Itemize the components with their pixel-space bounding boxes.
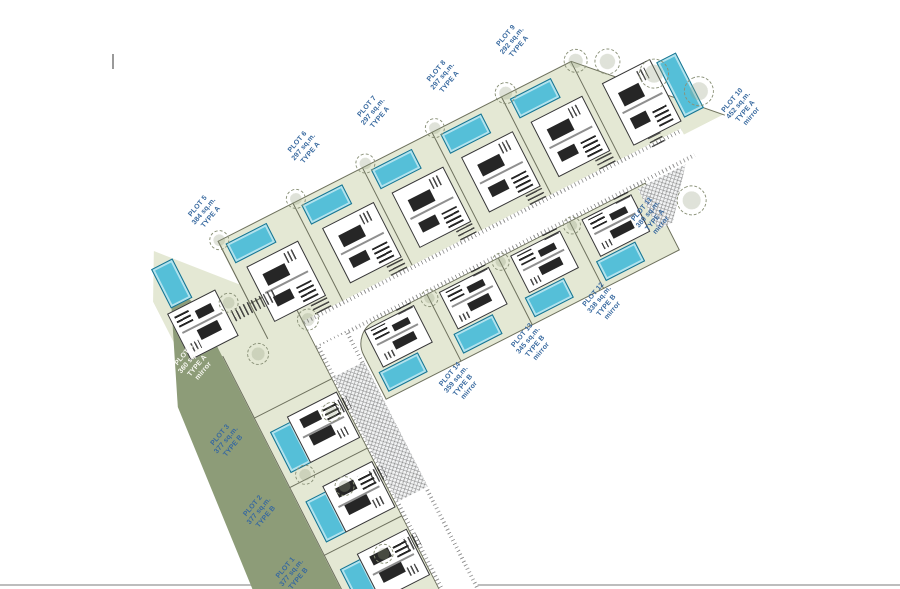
plot-9-label: PLOT 9 292 sq.m. TYPE A	[483, 9, 543, 74]
plot-6-label: PLOT 6 297 sq.m. TYPE A	[274, 115, 334, 180]
scan-artifact	[112, 54, 114, 69]
plot-8-label: PLOT 8 297 sq.m. TYPE A	[413, 45, 473, 110]
plot-7-label: PLOT 7 297 sq.m. TYPE A	[344, 80, 404, 145]
site-plan-canvas: PLOT 1 377 sq.m. TYPE B PLOT 2 377 sq.m.…	[0, 0, 900, 589]
plot-10-label: PLOT 10 452 sq.m. TYPE A mirror	[709, 74, 776, 145]
